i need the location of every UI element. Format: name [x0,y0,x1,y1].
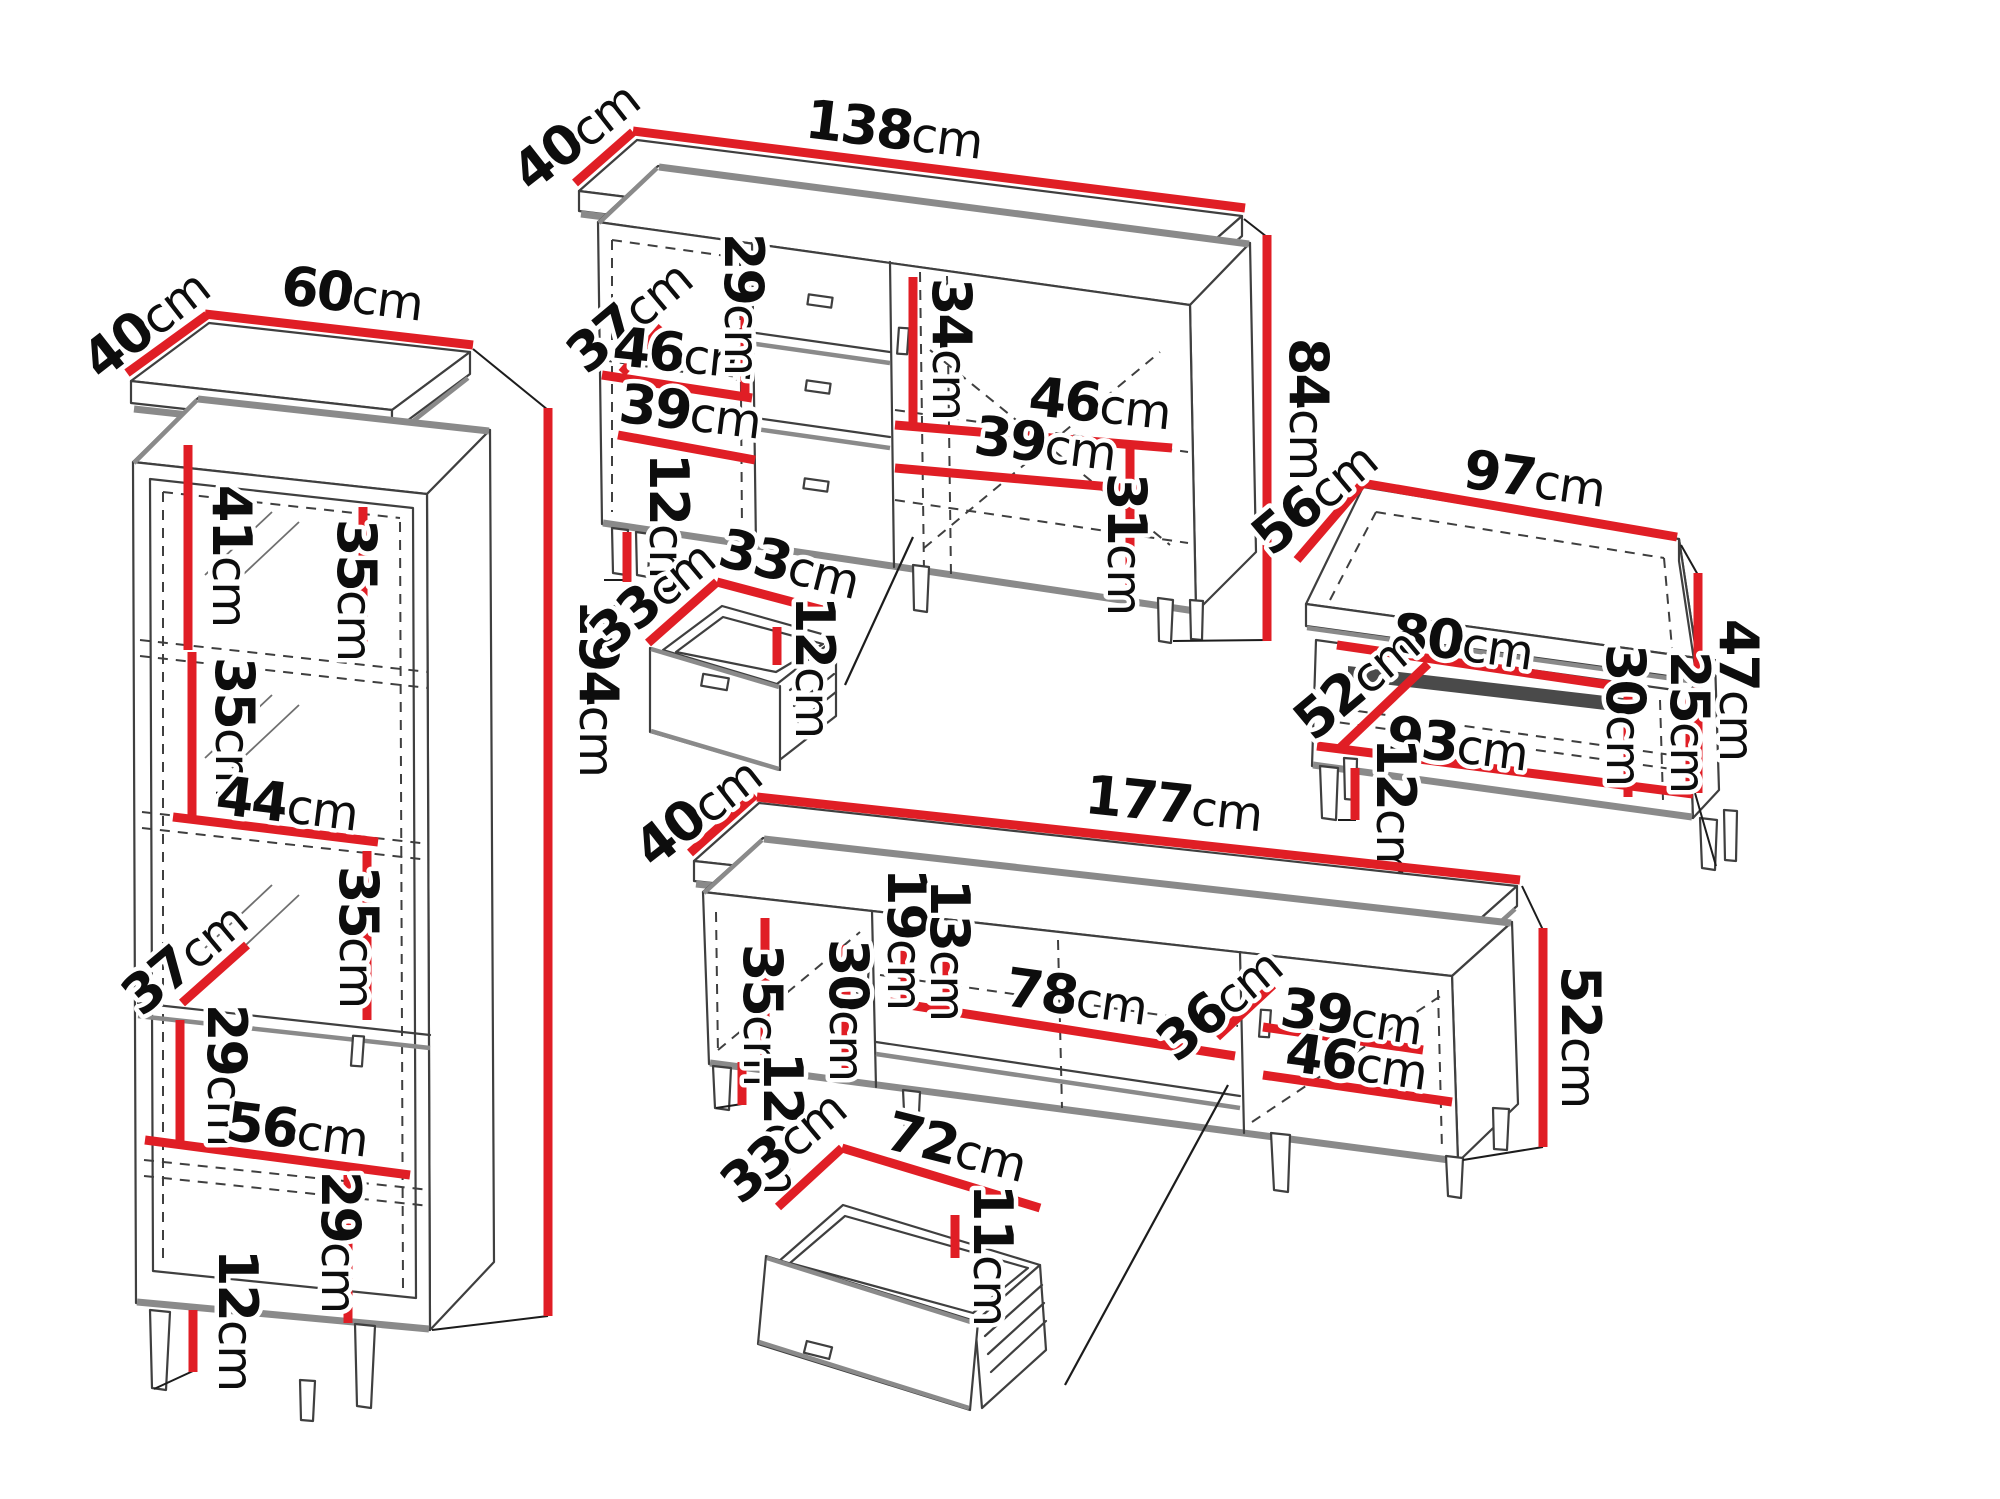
dim-label-drawer-height: 12cm [783,596,846,738]
display-cabinet: 40cm 60cm 41cm 35cm 35cm 44cm 37cm 35cm … [0,0,630,1421]
drawer-pointer-line [1065,1085,1228,1385]
coffee-table: 56cm 97cm 47cm 80cm 52cm 93cm 30cm 25cm … [1239,428,1770,880]
tv-drawer: 33cm 72cm 11cm [708,1076,1046,1410]
dim-label-shelf-third: 35cm [327,866,390,1008]
dim-label-shelf-space-height: 25cm [1658,651,1721,793]
drawer-handle [803,478,828,491]
dim-label-interior-height: 30cm [1594,644,1657,786]
dim-label-drawer-front-height: 13cm [918,879,981,1021]
dim-label-interior-height: 30cm [817,939,880,1081]
dim-label-shelf-top: 35cm [325,519,388,661]
display-cabinet-top-panel [0,0,470,437]
diagram-canvas: 40cm 60cm 41cm 35cm 35cm 44cm 37cm 35cm … [0,0,2000,1499]
dim-label-drawer-height: 11cm [961,1184,1024,1326]
door-handle [351,1036,364,1067]
door-handle [897,328,909,355]
dim-label-interior-top-height: 29cm [712,233,775,375]
dim-label-bottom-interior-height: 31cm [1095,473,1158,615]
dim-label-height: 52cm [1549,966,1612,1108]
dim-label-section-bottom: 29cm [309,1171,372,1313]
furniture-dimensions-diagram: 40cm 60cm 41cm 35cm 35cm 44cm 37cm 35cm … [0,0,2000,1499]
dim-label-legs: 12cm [1364,738,1427,880]
dim-label-legs: 12cm [206,1249,269,1391]
dim-label-right-top-height: 34cm [920,278,983,420]
dim-label-top-section: 41cm [200,485,263,627]
drawer-handle [805,380,830,393]
drawer-handle [807,294,832,307]
